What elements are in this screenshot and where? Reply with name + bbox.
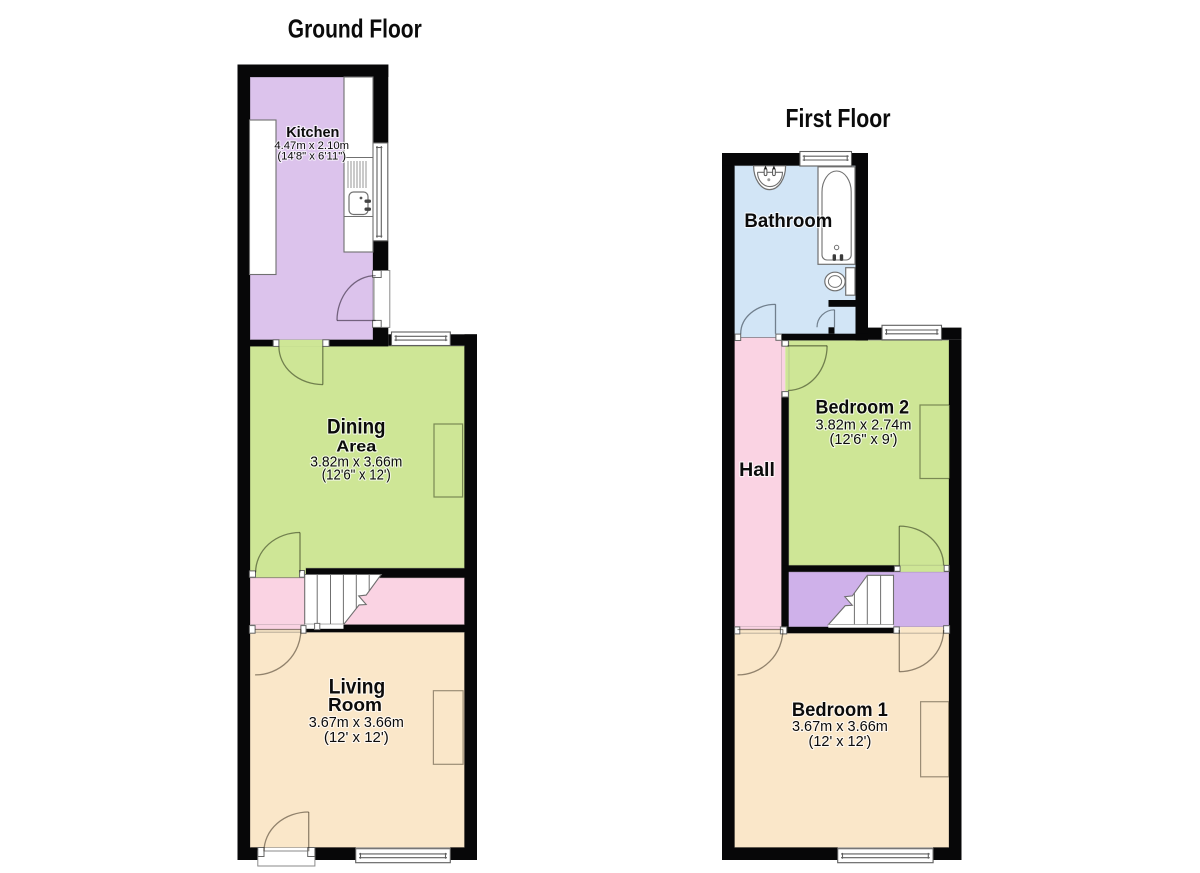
- svg-text:Hall: Hall: [739, 459, 775, 481]
- svg-text:(12' x 12'): (12' x 12'): [809, 734, 872, 750]
- svg-text:Bedroom 1: Bedroom 1: [792, 699, 888, 721]
- svg-text:(12'6" x 9'): (12'6" x 9'): [830, 432, 898, 448]
- svg-text:Bathroom: Bathroom: [744, 210, 832, 232]
- svg-text:Room: Room: [328, 695, 382, 715]
- svg-text:First Floor: First Floor: [786, 103, 891, 133]
- svg-text:(14'8" x 6'11"): (14'8" x 6'11"): [277, 151, 346, 163]
- svg-text:Kitchen: Kitchen: [286, 125, 339, 141]
- svg-text:Bedroom 2: Bedroom 2: [816, 397, 910, 419]
- svg-text:(12'6" x 12'): (12'6" x 12'): [322, 467, 391, 484]
- svg-text:3.82m x 2.74m: 3.82m x 2.74m: [816, 417, 912, 433]
- svg-text:Dining: Dining: [327, 416, 386, 439]
- svg-text:(12' x 12'): (12' x 12'): [324, 729, 389, 746]
- svg-text:Ground Floor: Ground Floor: [288, 14, 422, 44]
- svg-text:3.67m x 3.66m: 3.67m x 3.66m: [792, 719, 888, 735]
